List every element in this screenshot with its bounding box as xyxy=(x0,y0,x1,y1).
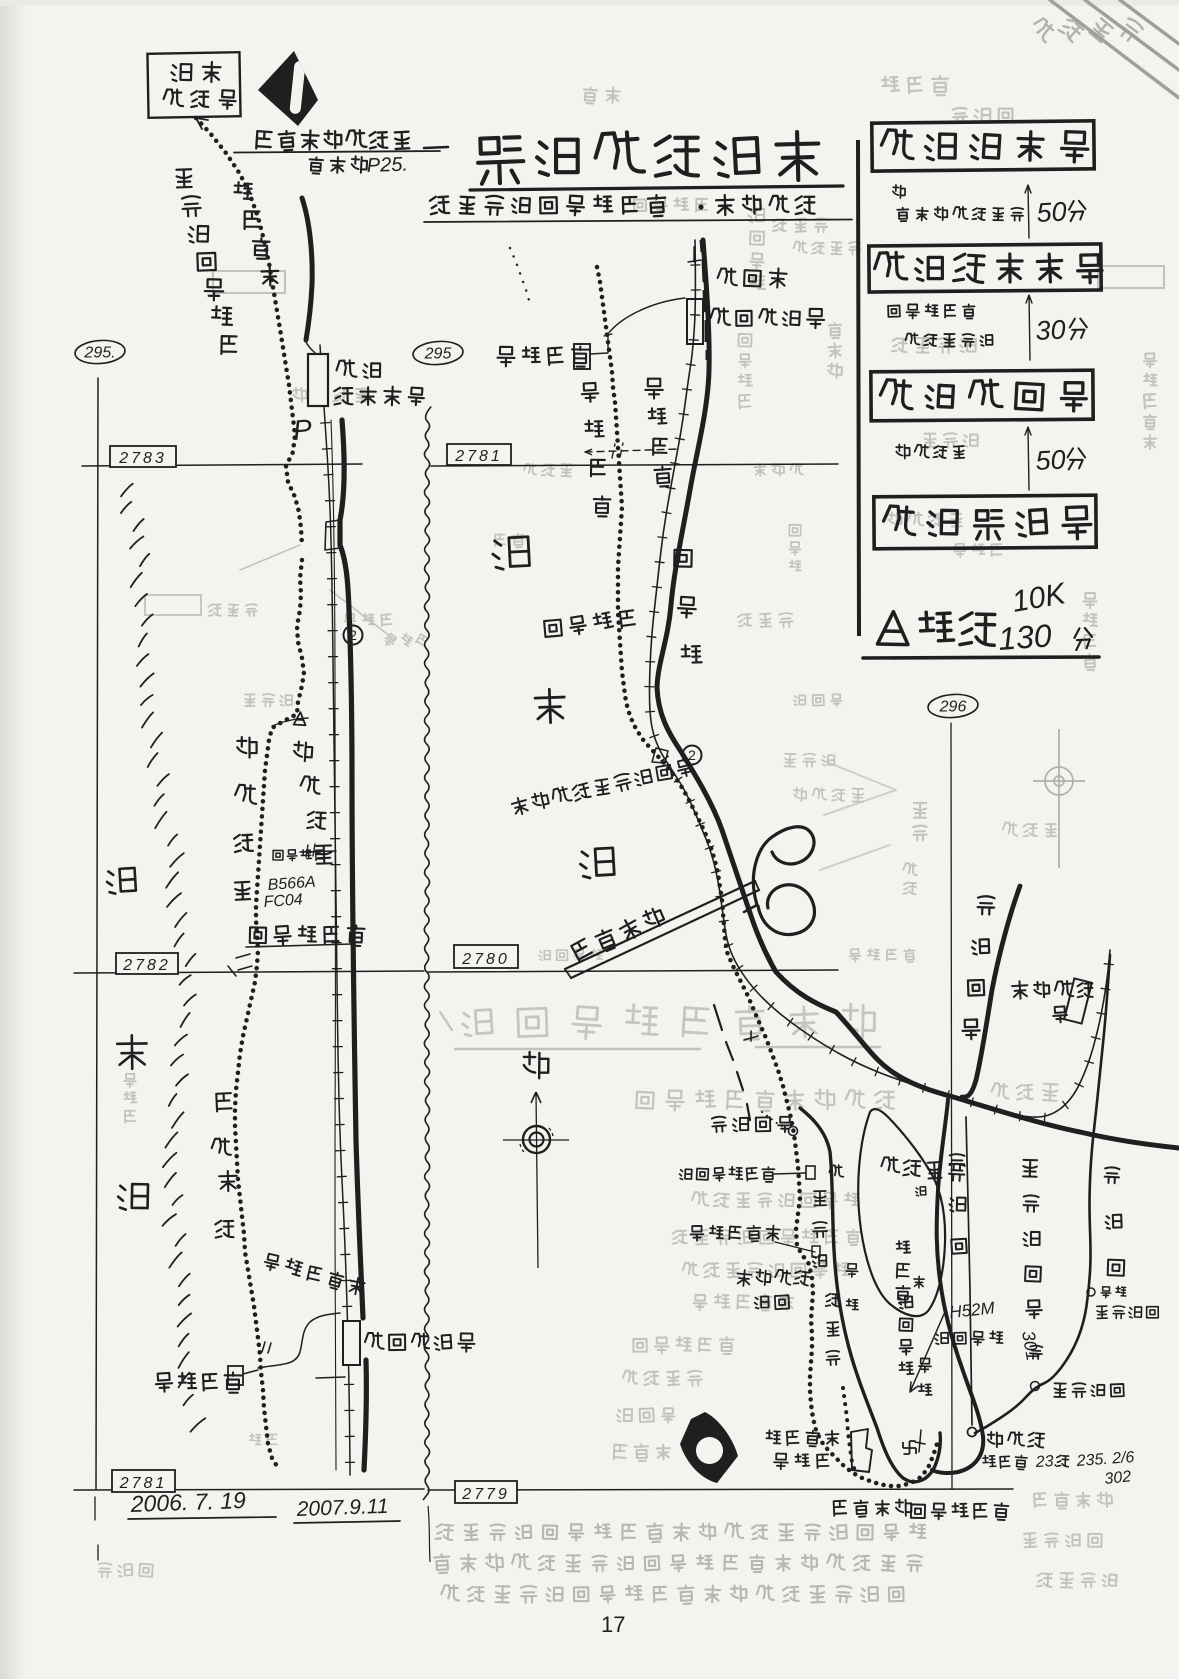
svg-text:2783: 2783 xyxy=(118,450,167,467)
svg-text:50: 50 xyxy=(1036,196,1068,228)
svg-text:296: 296 xyxy=(939,699,967,716)
svg-text:23.: 23. xyxy=(1034,1453,1058,1471)
svg-text:2: 2 xyxy=(349,627,357,643)
svg-text:295: 295 xyxy=(424,346,452,363)
svg-text:302: 302 xyxy=(1104,1468,1132,1488)
svg-text:2780: 2780 xyxy=(461,951,510,968)
svg-text:130: 130 xyxy=(997,617,1053,657)
svg-text:50: 50 xyxy=(1035,444,1067,476)
svg-text:P25.: P25. xyxy=(366,154,408,177)
svg-text:2007.9.11: 2007.9.11 xyxy=(295,1495,389,1521)
svg-text:P: P xyxy=(292,413,314,446)
svg-text:295.: 295. xyxy=(83,345,115,362)
svg-text:2782: 2782 xyxy=(122,957,171,974)
svg-text:30: 30 xyxy=(1035,314,1067,346)
svg-text:2779: 2779 xyxy=(461,1486,510,1503)
svg-text:2781: 2781 xyxy=(454,448,503,465)
svg-text:17: 17 xyxy=(601,1612,625,1637)
svg-text:FC04: FC04 xyxy=(263,891,303,911)
svg-text:2006. 7. 19: 2006. 7. 19 xyxy=(129,1487,246,1517)
svg-text:2: 2 xyxy=(688,747,696,763)
svg-text:B566A: B566A xyxy=(267,874,316,894)
